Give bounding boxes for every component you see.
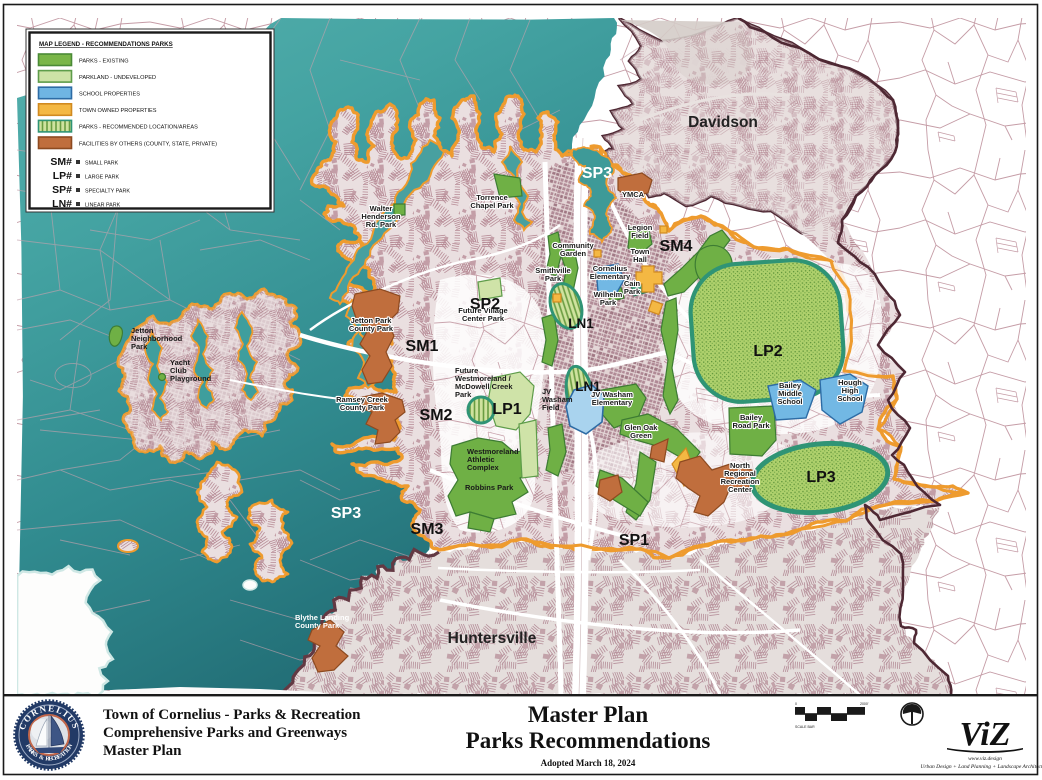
svg-text:SM4: SM4: [660, 238, 693, 255]
svg-text:YMCA: YMCA: [622, 190, 645, 199]
svg-text:PARKLAND - UNDEVELOPED: PARKLAND - UNDEVELOPED: [79, 75, 156, 81]
svg-text:Comprehensive Parks and Greenw: Comprehensive Parks and Greenways: [103, 725, 347, 741]
svg-text:FACILITIES BY OTHERS (COUNTY,: FACILITIES BY OTHERS (COUNTY, STATE, PRI…: [79, 141, 217, 147]
svg-text:LARGE PARK: LARGE PARK: [85, 175, 119, 181]
svg-text:SM#: SM#: [50, 156, 72, 168]
svg-text:LN1: LN1: [575, 379, 601, 394]
svg-text:SP1: SP1: [619, 532, 649, 549]
svg-text:ViZ: ViZ: [959, 716, 1010, 753]
svg-text:TOWN OWNED PROPERTIES: TOWN OWNED PROPERTIES: [79, 108, 157, 114]
svg-text:Parks Recommendations: Parks Recommendations: [466, 728, 711, 753]
svg-text:0: 0: [795, 702, 797, 706]
svg-text:SP3: SP3: [582, 165, 612, 182]
svg-text:Davidson: Davidson: [688, 114, 758, 131]
svg-text:Huntersville: Huntersville: [448, 630, 537, 647]
svg-text:SP#: SP#: [52, 184, 72, 196]
svg-text:2000': 2000': [860, 702, 869, 706]
svg-text:Master Plan: Master Plan: [528, 702, 649, 727]
svg-text:LP2: LP2: [753, 343, 782, 360]
svg-text:LN1: LN1: [568, 316, 594, 331]
svg-text:LINEAR PARK: LINEAR PARK: [85, 203, 121, 209]
svg-text:Master Plan: Master Plan: [103, 743, 182, 759]
svg-text:Urban Design + Land Planning +: Urban Design + Land Planning + Landscape…: [920, 764, 1042, 770]
svg-text:SM2: SM2: [420, 407, 453, 424]
svg-text:CainPark: CainPark: [624, 279, 641, 296]
svg-text:Adopted March 18, 2024: Adopted March 18, 2024: [541, 758, 636, 768]
svg-text:SM3: SM3: [411, 521, 444, 538]
svg-text:SMALL PARK: SMALL PARK: [85, 161, 119, 167]
svg-text:SPECIALTY PARK: SPECIALTY PARK: [85, 189, 130, 195]
svg-text:BaileyMiddleSchool: BaileyMiddleSchool: [777, 381, 802, 406]
svg-text:SCALE BAR: SCALE BAR: [795, 725, 815, 729]
svg-text:Robbins Park: Robbins Park: [465, 483, 514, 492]
svg-text:Jetton ParkCounty Park: Jetton ParkCounty Park: [349, 316, 394, 333]
svg-text:LP3: LP3: [806, 469, 835, 486]
svg-text:www.viz.design: www.viz.design: [968, 756, 1002, 762]
svg-text:LP1: LP1: [492, 401, 521, 418]
svg-text:PARKS - EXISTING: PARKS - EXISTING: [79, 58, 129, 64]
svg-text:MAP LEGEND - RECOMMENDATIONS P: MAP LEGEND - RECOMMENDATIONS PARKS: [39, 41, 173, 48]
svg-text:Ramsey CreekCounty Park: Ramsey CreekCounty Park: [336, 395, 389, 412]
svg-text:PARKS - RECOMMENDED LOCATION/A: PARKS - RECOMMENDED LOCATION/AREAS: [79, 125, 198, 131]
svg-text:LN#: LN#: [52, 198, 72, 210]
svg-text:SM1: SM1: [406, 338, 439, 355]
svg-text:SCHOOL PROPERTIES: SCHOOL PROPERTIES: [79, 92, 140, 98]
svg-text:SP2: SP2: [470, 296, 500, 313]
svg-text:LP#: LP#: [53, 170, 72, 182]
svg-text:Town of Cornelius - Parks & Re: Town of Cornelius - Parks & Recreation: [103, 707, 361, 723]
svg-text:SP3: SP3: [331, 505, 361, 522]
